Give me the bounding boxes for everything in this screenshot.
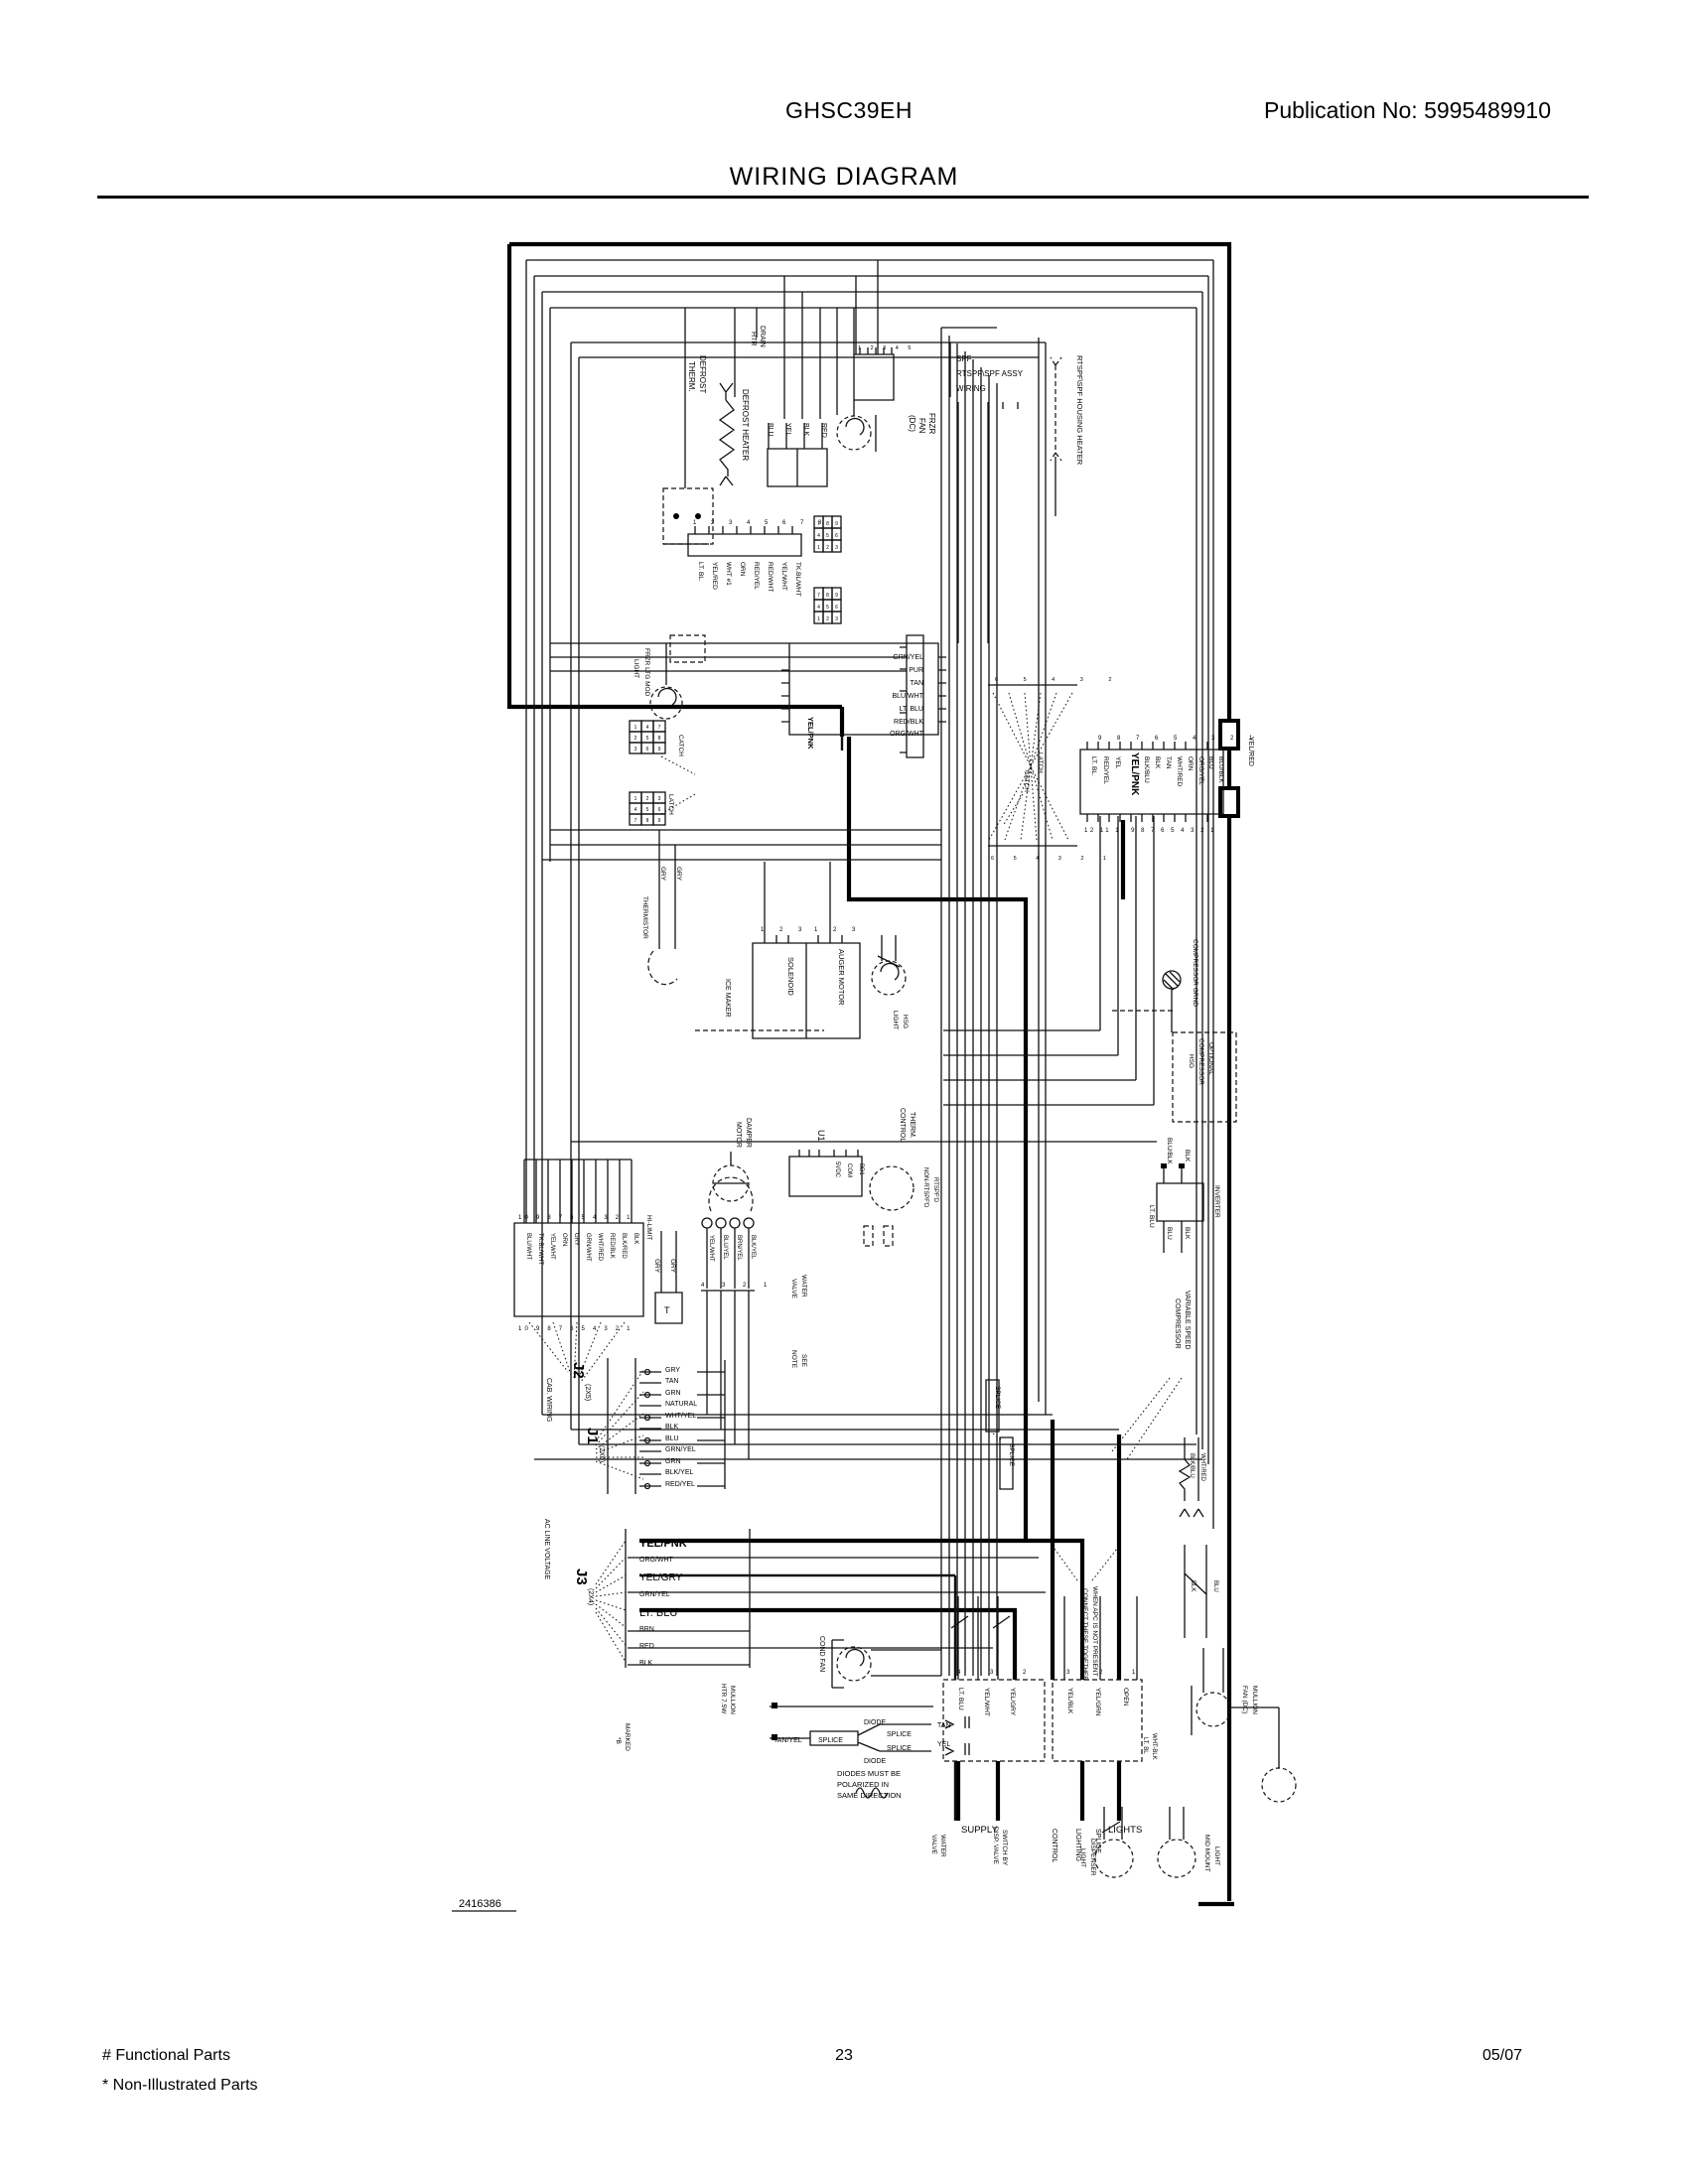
label-f1-pins: 1 2 3 4 5 6 7 8 [693, 520, 828, 526]
label-inv-w2: BLK [1184, 1150, 1191, 1162]
svg-text:6: 6 [835, 533, 838, 539]
label-doorsw-latch: LATCH [1037, 752, 1044, 773]
label-supa-w2: YEL/WHT [983, 1688, 990, 1716]
label-htr-w1: WHT/RED [1199, 1453, 1205, 1482]
label-disp-w9: ORN [1187, 756, 1194, 771]
label-sw-w1: BLK [1190, 1580, 1196, 1591]
label-apc-2: CONNECT THESE TOGETHER [1081, 1588, 1088, 1681]
label-disp-w5: BLK/BLU [1143, 756, 1150, 783]
label-frzr-fan-2: FAN [917, 418, 926, 434]
svg-text:9: 9 [835, 521, 838, 527]
label-j1-w6: BLK [665, 1424, 679, 1431]
label-wv-w1: YEL/WHT [708, 1235, 714, 1262]
label-doorsw-pins-t: 6 5 4 3 2 [995, 677, 1123, 683]
svg-text:4: 4 [817, 605, 820, 611]
label-inverter: INVERTER [1213, 1185, 1220, 1218]
label-j1-size: (2X6) [598, 1445, 605, 1462]
svg-text:3: 3 [658, 796, 661, 802]
svg-text:7: 7 [658, 725, 661, 731]
label-grid-latch: LATCH [667, 794, 674, 815]
label-f1-w3: WHT #1 [725, 562, 732, 586]
label-damper-2: MOTOR [735, 1122, 742, 1148]
svg-text:4: 4 [817, 533, 820, 539]
label-mullion-htr-1: MULLION [729, 1686, 736, 1714]
label-wv2-1: WATER [939, 1835, 946, 1857]
label-splice-c2: SPLICE [1008, 1443, 1015, 1467]
svg-text:8: 8 [646, 818, 649, 824]
label-opt-3: HSG [1188, 1054, 1195, 1068]
label-housing-heater: RTSPF\SPF HOUSING HEATER [1075, 355, 1084, 466]
label-supa-w3: YEL/GRY [1009, 1688, 1016, 1716]
label-j1-w8: GRN/YEL [665, 1446, 696, 1453]
svg-text:6: 6 [646, 747, 649, 752]
label-splice-box: SPLICE [818, 1737, 843, 1744]
footer-date: 05/07 [1482, 2047, 1522, 2065]
label-wire-yel: YEL [784, 423, 791, 436]
label-f1-w1: LT. BL. [697, 562, 704, 582]
label-vscomp-2: COMPRESSOR [1174, 1298, 1181, 1349]
label-inv-w1: BLU/BLK [1166, 1138, 1173, 1164]
label-mid-light-2: LIGHT [1213, 1846, 1220, 1865]
page-number: 23 [0, 2047, 1688, 2065]
label-spf-note-1: SPF [956, 354, 972, 363]
label-frzr-ltg-mod: FRZR LTG MOD [643, 648, 650, 697]
footer-non-illustrated-parts: * Non-Illustrated Parts [102, 2077, 258, 2095]
label-j1-w9: GRN [665, 1458, 681, 1465]
svg-text:3: 3 [835, 545, 838, 551]
grid-latch: 147258369 [630, 792, 665, 825]
label-wire-red: RED [820, 423, 827, 438]
label-j3-w1: YEL/PNK [639, 1538, 687, 1550]
svg-text:1: 1 [817, 616, 820, 622]
label-fuse-t: T [664, 1305, 670, 1315]
wiring-diagram: DEFROSTTHERM.DEFROST HEATERDRAINHTRBLUYE… [0, 0, 1688, 2184]
label-inv-w4: BLK [1184, 1227, 1191, 1240]
label-u1-c: BD1 [858, 1163, 864, 1175]
svg-text:1: 1 [817, 545, 820, 551]
label-marked-2: *B [615, 1737, 622, 1744]
label-board-w7: ORG/WHT [890, 731, 924, 738]
label-disp-w10: ORG/YEL [1197, 756, 1204, 785]
label-j3-w2: ORG/WHT [639, 1557, 674, 1564]
label-tan: TAN [937, 1722, 950, 1729]
dotted-leaders [529, 693, 1182, 1662]
label-hsg-1: HSG [902, 1015, 909, 1028]
label-f1-w8: TK.BL/WHT [794, 562, 801, 597]
label-j3-w8: BLK [639, 1660, 653, 1667]
label-frzr-light: LIGHT [633, 659, 639, 678]
label-supb-pins: 3 2 1 [1066, 1670, 1149, 1676]
svg-text:1: 1 [634, 796, 637, 802]
label-disp-w8: WHT/RED [1176, 756, 1183, 787]
label-f1-w2: YEL/RED [711, 562, 718, 590]
label-frzr-fan-3: (DC) [908, 415, 916, 432]
label-wire-blk: BLK [802, 423, 809, 437]
svg-text:4: 4 [646, 725, 649, 731]
label-diode-2: DIODE [864, 1758, 887, 1765]
label-f1-w4: ORN [739, 562, 746, 577]
label-f1-w5: RED/YEL [753, 562, 760, 590]
label-im-pins-1: 1 2 3 [761, 927, 808, 933]
label-marked-1: MARKED [624, 1723, 631, 1751]
grid-catch: 123456789 [630, 721, 665, 753]
label-drain-htr-1: DRAIN [759, 326, 766, 347]
label-thermistor-gry2: GRY [675, 867, 682, 882]
label-supb-w2: YEL/GRN [1094, 1688, 1101, 1716]
label-wire-blu: BLU [767, 423, 774, 437]
label-disp-w1: LT. BL. [1090, 756, 1097, 776]
label-board-w4: BLU/WHT [893, 693, 924, 700]
label-control: CONTROL [1051, 1829, 1057, 1862]
label-defrost-therm-2: THERM. [687, 361, 696, 392]
label-cab-wiring: CAB. WIRING [545, 1378, 552, 1422]
label-mull-fan-2: FAN (DC) [1241, 1686, 1248, 1713]
label-disp-w2: RED/YEL [1102, 756, 1109, 784]
svg-text:7: 7 [634, 818, 637, 824]
label-wv-w4: BLK/YEL [750, 1235, 756, 1260]
label-solenoid: SOLENOID [786, 957, 795, 996]
label-j3-w3: YEL/GRY [639, 1572, 682, 1583]
label-j1-w7: BLU [665, 1435, 679, 1442]
label-j3-w4: GRN/YEL [639, 1591, 670, 1598]
label-j1: J1 [584, 1428, 601, 1444]
label-part-number: 2416386 [459, 1898, 501, 1910]
label-wv2-2: VALVE [930, 1835, 937, 1855]
label-splice-1: SPLICE [887, 1731, 912, 1738]
label-j1-w11: RED/YEL [665, 1481, 695, 1488]
label-im-pins-2: 1 2 3 [814, 927, 862, 933]
label-rtspfd: RTSPF'D [932, 1177, 938, 1203]
label-tan-yel: TAN/YEL [774, 1737, 802, 1744]
label-apc-1: WHEN APC IS NOT PRESENT [1091, 1586, 1098, 1677]
label-hsg-2: LIGHT [892, 1011, 899, 1029]
label-j2-w8: RED/BLK [609, 1233, 615, 1259]
label-wv-pins: 4 3 2 1 [701, 1283, 774, 1289]
label-disp-light-1: DISPENSER [1089, 1839, 1096, 1876]
label-auger-motor: AUGER MOTOR [837, 949, 846, 1006]
label-comp-gnd: COMPRESSOR GRND [1192, 939, 1198, 1007]
label-thermistor: THERMISTOR [641, 896, 648, 939]
svg-text:9: 9 [835, 593, 838, 599]
label-splice-2: SPLICE [887, 1745, 912, 1752]
label-spf-note-3: WIRING [956, 384, 986, 393]
svg-text:8: 8 [826, 521, 829, 527]
label-inv-ltblu: LT. BLU [1148, 1205, 1155, 1228]
label-j2: J2 [570, 1362, 587, 1379]
label-frzr-fan-1: FRZR [927, 413, 936, 435]
label-board-w2: PUR [909, 667, 923, 674]
svg-text:8: 8 [826, 593, 829, 599]
label-j3-w7: RED [639, 1643, 654, 1650]
label-disp-w11: BLU [1207, 756, 1214, 769]
label-htr-w2: BLK/BLU [1189, 1453, 1195, 1478]
label-u1-a: 5VDC [834, 1161, 840, 1178]
label-j1-w3: GRN [665, 1390, 681, 1397]
label-see-note-2: NOTE [790, 1350, 797, 1369]
label-lights: LIGHTS [1108, 1825, 1142, 1836]
label-j2-w10: BLK [633, 1233, 638, 1244]
grid-ic2: 741852963 [814, 588, 841, 623]
svg-text:3: 3 [835, 616, 838, 622]
label-mull-fan-1: MULLION [1251, 1686, 1258, 1714]
label-supb-w1: YEL/BLK [1066, 1688, 1073, 1714]
label-diode-note-1: DIODES MUST BE [837, 1769, 901, 1778]
label-disp-w7: TAN [1165, 756, 1172, 769]
label-disp-pins-b: 12 11 10 9 8 7 6 5 4 3 2 1 [1084, 828, 1216, 834]
label-wv-note-2: VALVE [790, 1279, 797, 1299]
label-ctl-2: CONTROL [899, 1108, 906, 1142]
label-f1-w7: YEL/WHT [780, 562, 787, 591]
label-yel-pnk-main: YEL/PNK [806, 717, 815, 750]
svg-text:3: 3 [634, 747, 637, 752]
label-drain-htr-2: HTR [750, 332, 757, 345]
svg-text:9: 9 [658, 747, 661, 752]
svg-text:8: 8 [658, 736, 661, 742]
label-j3-w5: LT. BLU [639, 1607, 677, 1619]
label-hi-limit: HI-LIMIT [645, 1215, 652, 1240]
label-disp-w12: BLU/BLK [1217, 756, 1224, 783]
label-j1-w5: WHT/YEL [665, 1413, 696, 1420]
label-j2-w2: TK.BL/WHT [537, 1233, 543, 1265]
label-fuse-gry2: GRY [669, 1259, 676, 1274]
label-j2-w4: ORN [561, 1233, 567, 1246]
label-supa-w1: LT. BLU [957, 1688, 964, 1710]
label-vscomp-1: VARIABLE SPEED [1184, 1291, 1191, 1349]
label-see-note-1: SEE [800, 1354, 807, 1368]
label-ice-maker: ICE MAKER [724, 979, 731, 1018]
label-grid-catch: CATCH [677, 735, 684, 756]
label-j2-w1: BLU/WHT [525, 1233, 531, 1260]
manual-page: GHSC39EH Publication No: 5995489910 WIRI… [0, 0, 1688, 2184]
svg-text:7: 7 [817, 521, 820, 527]
thin-wires [452, 260, 1279, 1911]
label-relay-pins: 1 2 3 4 5 [858, 345, 914, 351]
label-j2-pins-b: 10 9 8 7 6 5 4 3 2 1 [518, 1326, 633, 1332]
label-diode-1: DIODE [864, 1719, 887, 1726]
label-yel-red-bus: YEL/RED [1247, 737, 1254, 766]
label-board-w1: GRN/YEL [893, 654, 923, 661]
label-ac-line: AC LINE VOLTAGE [543, 1519, 550, 1580]
svg-text:6: 6 [835, 605, 838, 611]
label-doorsw-catch: CATCH [1023, 770, 1030, 792]
label-j2-w3: YEL/WHT [549, 1233, 555, 1260]
label-board-w6: RED/BLK [894, 719, 923, 726]
label-disp-w3: YEL [1114, 756, 1121, 769]
label-mullion-htr-2: HTR 7.5W [720, 1684, 727, 1714]
grid-ic1: 741852963 [814, 516, 841, 552]
label-j2-w6: GRN/WHT [585, 1233, 591, 1262]
label-j3-size: (2X4) [587, 1588, 594, 1605]
label-disp-w6: BLK [1154, 756, 1161, 769]
label-j1-w10: BLK/YEL [665, 1469, 694, 1476]
label-sw2-2: DISP. VALVE [992, 1827, 999, 1865]
svg-text:1: 1 [634, 725, 637, 731]
label-disp-w4: YEL/PNK [1129, 752, 1140, 796]
label-wv-w3: BRN/YEL [736, 1235, 742, 1261]
label-j2-w9: BLK/RED [621, 1233, 627, 1259]
label-j1-w4: NATURAL [665, 1401, 697, 1408]
label-j3: J3 [573, 1569, 590, 1585]
label-j1-w1: GRY [665, 1367, 680, 1374]
label-board-w3: TAN [911, 680, 923, 687]
label-defrost-heater: DEFROST HEATER [741, 389, 750, 461]
label-diode-note-3: SAME DIRECTION [837, 1791, 902, 1800]
label-opt-1: OPTIONAL [1207, 1042, 1214, 1075]
label-wht-blk: WHT-BLK [1151, 1733, 1157, 1760]
label-u1: U1 [816, 1130, 826, 1142]
label-j2-pins-t: 10 9 8 7 6 5 4 3 2 1 [518, 1215, 633, 1221]
svg-text:5: 5 [646, 807, 649, 813]
svg-text:5: 5 [826, 605, 829, 611]
label-sw2-1: SWITCH BY [1001, 1830, 1008, 1866]
label-thermistor-gry1: GRY [659, 867, 666, 882]
label-f1-w6: RED/WHT [767, 562, 774, 592]
label-cond-fan: COND FAN [818, 1636, 825, 1672]
label-j1-w2: TAN [665, 1378, 678, 1385]
label-j3-w6: BRN [639, 1626, 654, 1633]
bold-bus-wires [509, 244, 1238, 1904]
svg-text:4: 4 [634, 807, 637, 813]
label-yel: YEL [937, 1741, 950, 1748]
label-j2-w5: GRY [573, 1233, 579, 1246]
label-splice-c1: SPLICE [994, 1386, 1001, 1410]
label-j2-w7: WHT/RED [597, 1233, 603, 1262]
label-u1-b: COM [846, 1163, 852, 1177]
label-disp-light-2: LIGHT [1079, 1848, 1086, 1867]
label-supa-pins: 4 3 2 [957, 1670, 1040, 1676]
label-defrost-therm-1: DEFROST [698, 355, 707, 393]
label-j2-size: (2X5) [584, 1384, 591, 1401]
label-sw-w2: BLU [1212, 1580, 1218, 1592]
label-ctl-1: THERM. [909, 1112, 915, 1139]
svg-text:2: 2 [826, 545, 829, 551]
label-wv-w2: BLU/YEL [722, 1235, 728, 1260]
label-spf-note-2: RTSPF\SPF ASSY [956, 369, 1024, 378]
label-disp-pins-t: 9 8 7 6 5 4 3 2 1 [1098, 736, 1259, 742]
label-diode-note-2: POLARIZED IN [837, 1780, 889, 1789]
label-mid-light-1: MID MOUNT [1203, 1835, 1210, 1872]
label-doorsw-pins-b: 6 5 4 3 2 1 [991, 856, 1115, 862]
label-fuse-gry1: GRY [653, 1259, 660, 1274]
svg-text:2: 2 [646, 796, 649, 802]
label-non-rtspfd: NON-RTSPF'D [922, 1167, 928, 1208]
label-lt-bl-2: LT. BL [1142, 1737, 1148, 1754]
label-opt-2: COMPRESSOR [1197, 1038, 1204, 1085]
label-supb-w3: OPEN [1122, 1688, 1129, 1706]
label-inv-w3: BLU [1166, 1227, 1173, 1240]
svg-text:2: 2 [826, 616, 829, 622]
svg-text:9: 9 [658, 818, 661, 824]
svg-text:7: 7 [817, 593, 820, 599]
label-board-w5: LT. BLU [900, 706, 923, 713]
svg-text:5: 5 [826, 533, 829, 539]
label-damper-1: DAMPER [745, 1118, 752, 1148]
svg-text:6: 6 [658, 807, 661, 813]
svg-text:5: 5 [646, 736, 649, 742]
svg-text:2: 2 [634, 736, 637, 742]
label-wv-note-1: WATER [800, 1275, 807, 1297]
